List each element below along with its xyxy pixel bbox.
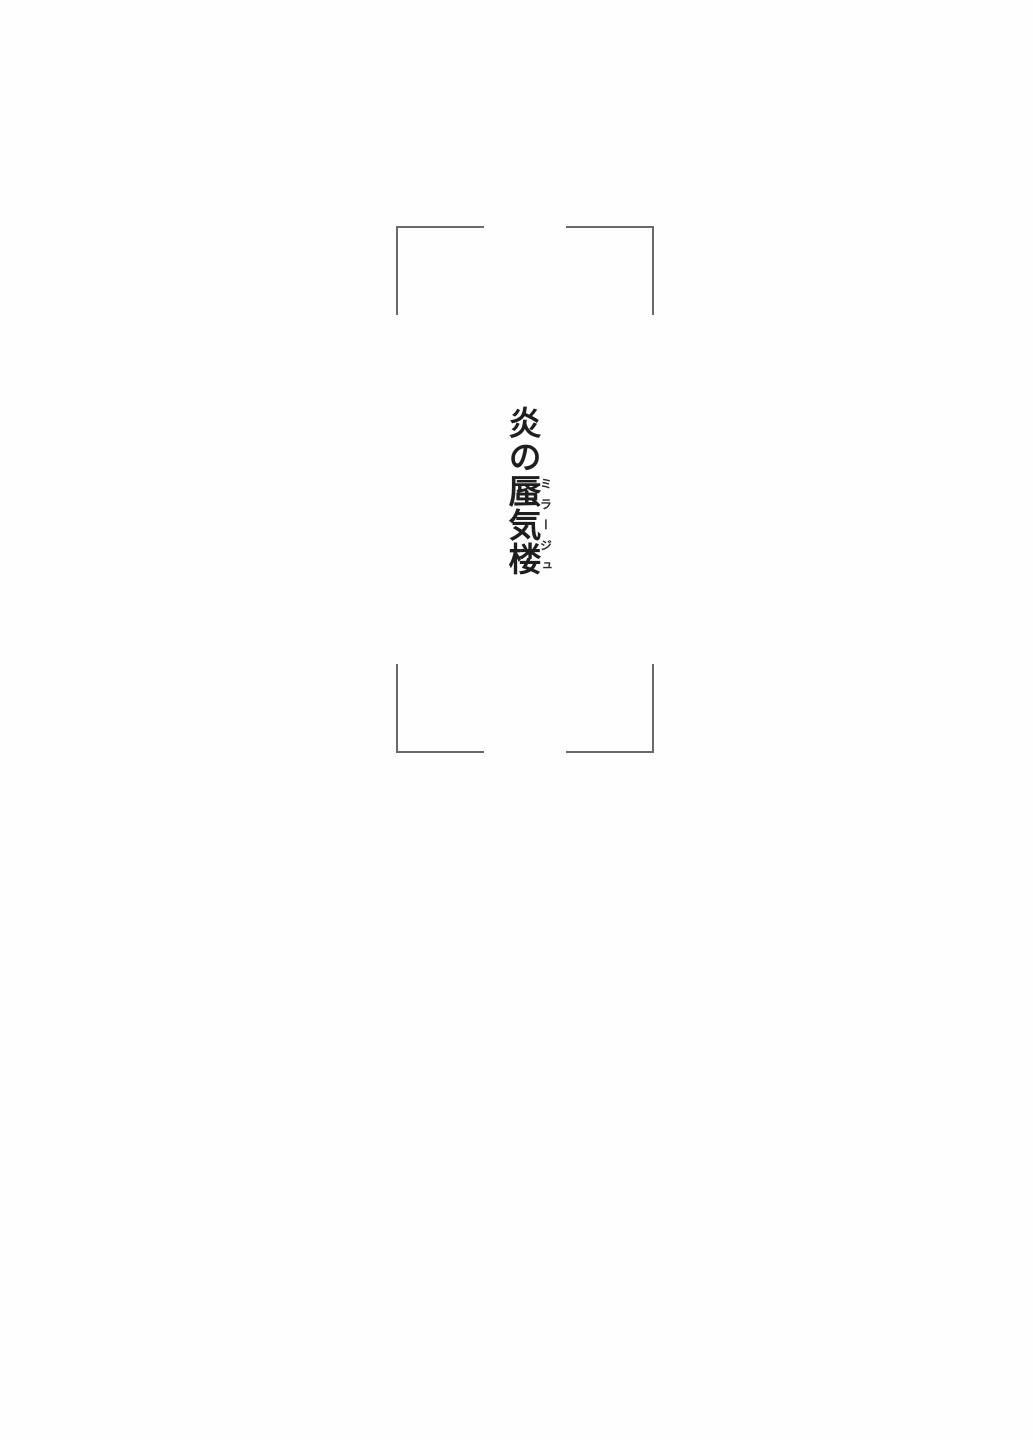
title-prefix: 炎の: [503, 406, 542, 474]
title-ruby-group: 蜃気楼ミラージュ: [503, 474, 542, 576]
frame-corner-top-left: [396, 226, 484, 315]
title-furigana: ミラージュ: [539, 474, 553, 576]
frame-corner-bottom-right: [566, 664, 654, 753]
title-ruby-base: 蜃気楼: [503, 474, 542, 576]
frame-corner-top-right: [566, 226, 654, 315]
book-title: 炎の蜃気楼ミラージュ: [506, 406, 552, 576]
frame-corner-bottom-left: [396, 664, 484, 753]
scanned-page: 炎の蜃気楼ミラージュ: [0, 0, 1033, 1440]
